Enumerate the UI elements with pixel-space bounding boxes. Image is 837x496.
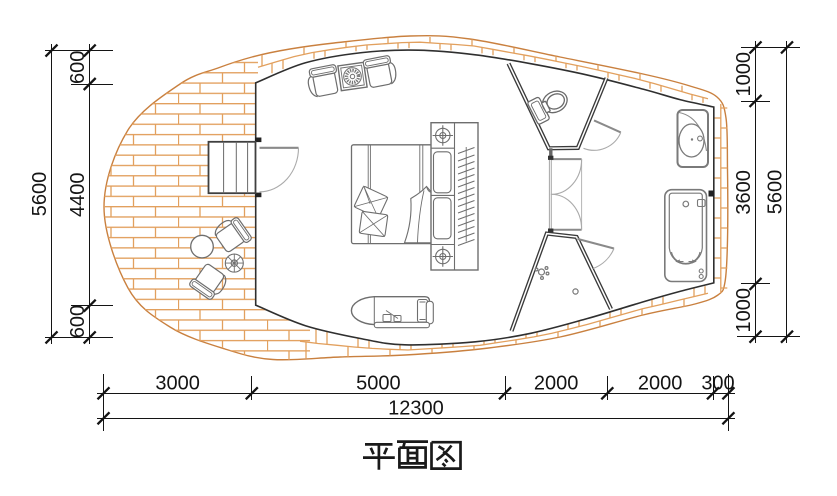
- svg-text:600: 600: [67, 51, 89, 84]
- svg-text:3600: 3600: [733, 170, 755, 215]
- svg-text:2000: 2000: [534, 372, 579, 394]
- svg-text:2000: 2000: [638, 372, 683, 394]
- svg-text:12300: 12300: [388, 397, 444, 419]
- svg-text:4400: 4400: [67, 173, 89, 218]
- svg-text:5000: 5000: [356, 372, 401, 394]
- svg-text:600: 600: [67, 305, 89, 338]
- svg-text:5600: 5600: [29, 172, 51, 217]
- svg-text:300: 300: [701, 372, 734, 394]
- svg-text:1000: 1000: [733, 288, 755, 333]
- svg-text:1000: 1000: [733, 52, 755, 97]
- svg-text:3000: 3000: [155, 372, 200, 394]
- svg-text:5600: 5600: [765, 170, 787, 215]
